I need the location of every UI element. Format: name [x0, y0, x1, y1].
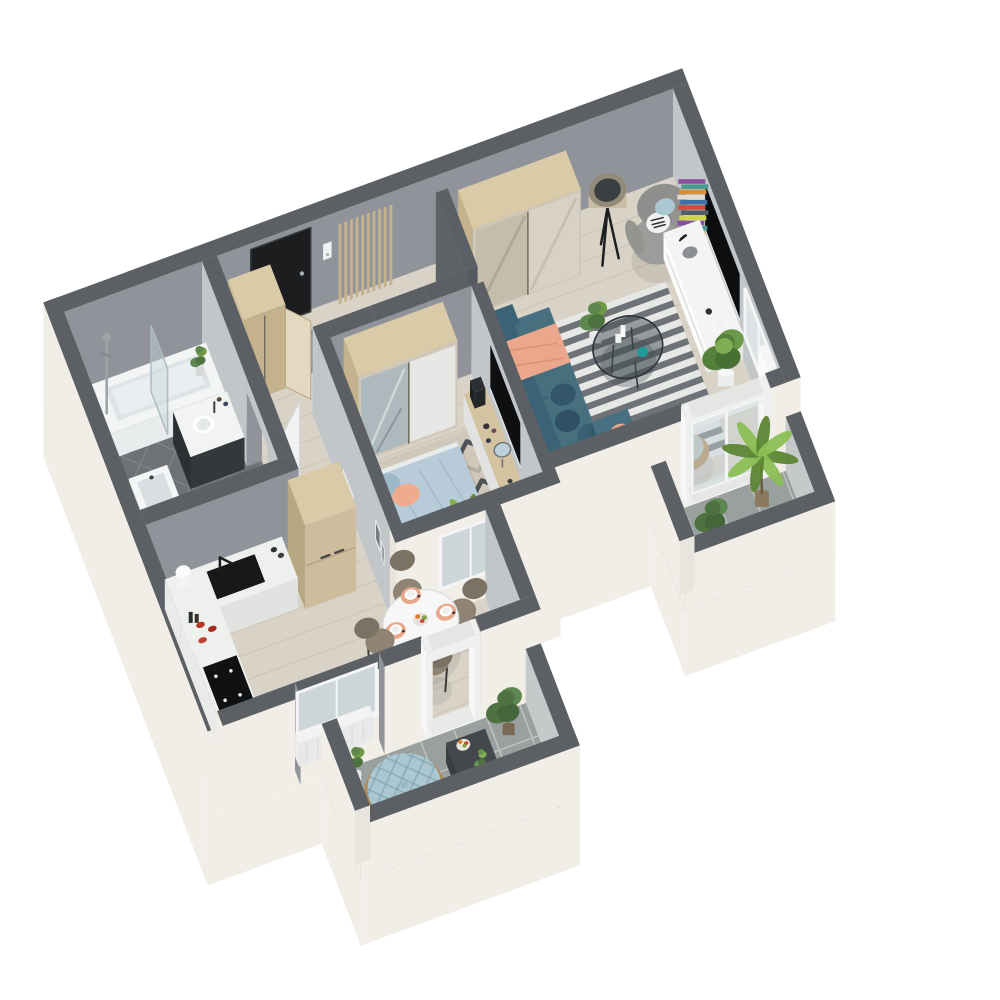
- tall-cabinet: [288, 462, 356, 610]
- apartment-3d-scene: WELCOME: [0, 0, 1000, 1000]
- intercom: [323, 241, 332, 260]
- floorplan-render: WELCOME: [0, 0, 1000, 1000]
